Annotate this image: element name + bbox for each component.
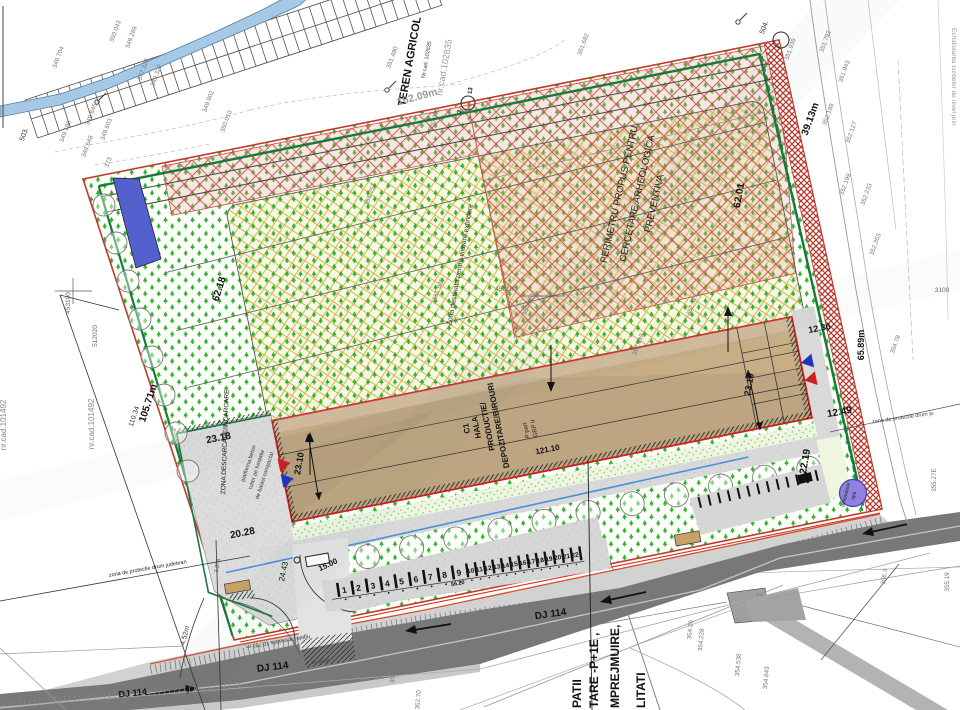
svg-text:15: 15 [510, 561, 519, 569]
svg-text:17: 17 [528, 558, 537, 566]
svg-text:18: 18 [536, 557, 545, 565]
svg-text:12: 12 [484, 565, 493, 573]
svg-text:16: 16 [519, 559, 528, 567]
svg-text:14: 14 [501, 562, 510, 570]
svg-text:LITATI: LITATI [634, 672, 648, 708]
svg-text:TARE -P+1E ,: TARE -P+1E , [587, 633, 601, 708]
svg-text:10: 10 [467, 567, 476, 575]
svg-text:13: 13 [493, 563, 502, 571]
svg-text:355.19: 355.19 [944, 572, 951, 592]
svg-text:22: 22 [571, 552, 580, 560]
svg-text:512020: 512020 [92, 325, 99, 347]
svg-text:PATII: PATII [570, 679, 584, 708]
svg-text:Echidistanta curbelor de nivel: Echidistanta curbelor de nivel prin [950, 28, 957, 126]
svg-text:453100: 453100 [65, 292, 72, 314]
svg-text:19: 19 [545, 555, 554, 563]
svg-text:MPREJMUIRE,: MPREJMUIRE, [608, 625, 622, 708]
svg-text:20: 20 [554, 554, 563, 562]
svg-text:nr.cad.101492: nr.cad.101492 [87, 398, 96, 449]
svg-text:nr.cad.101492: nr.cad.101492 [0, 399, 8, 450]
svg-text:65.89m: 65.89m [856, 330, 866, 361]
svg-text:355.27E: 355.27E [931, 468, 938, 491]
svg-text:21: 21 [562, 553, 571, 561]
svg-text:453100: 453100 [495, 286, 517, 293]
